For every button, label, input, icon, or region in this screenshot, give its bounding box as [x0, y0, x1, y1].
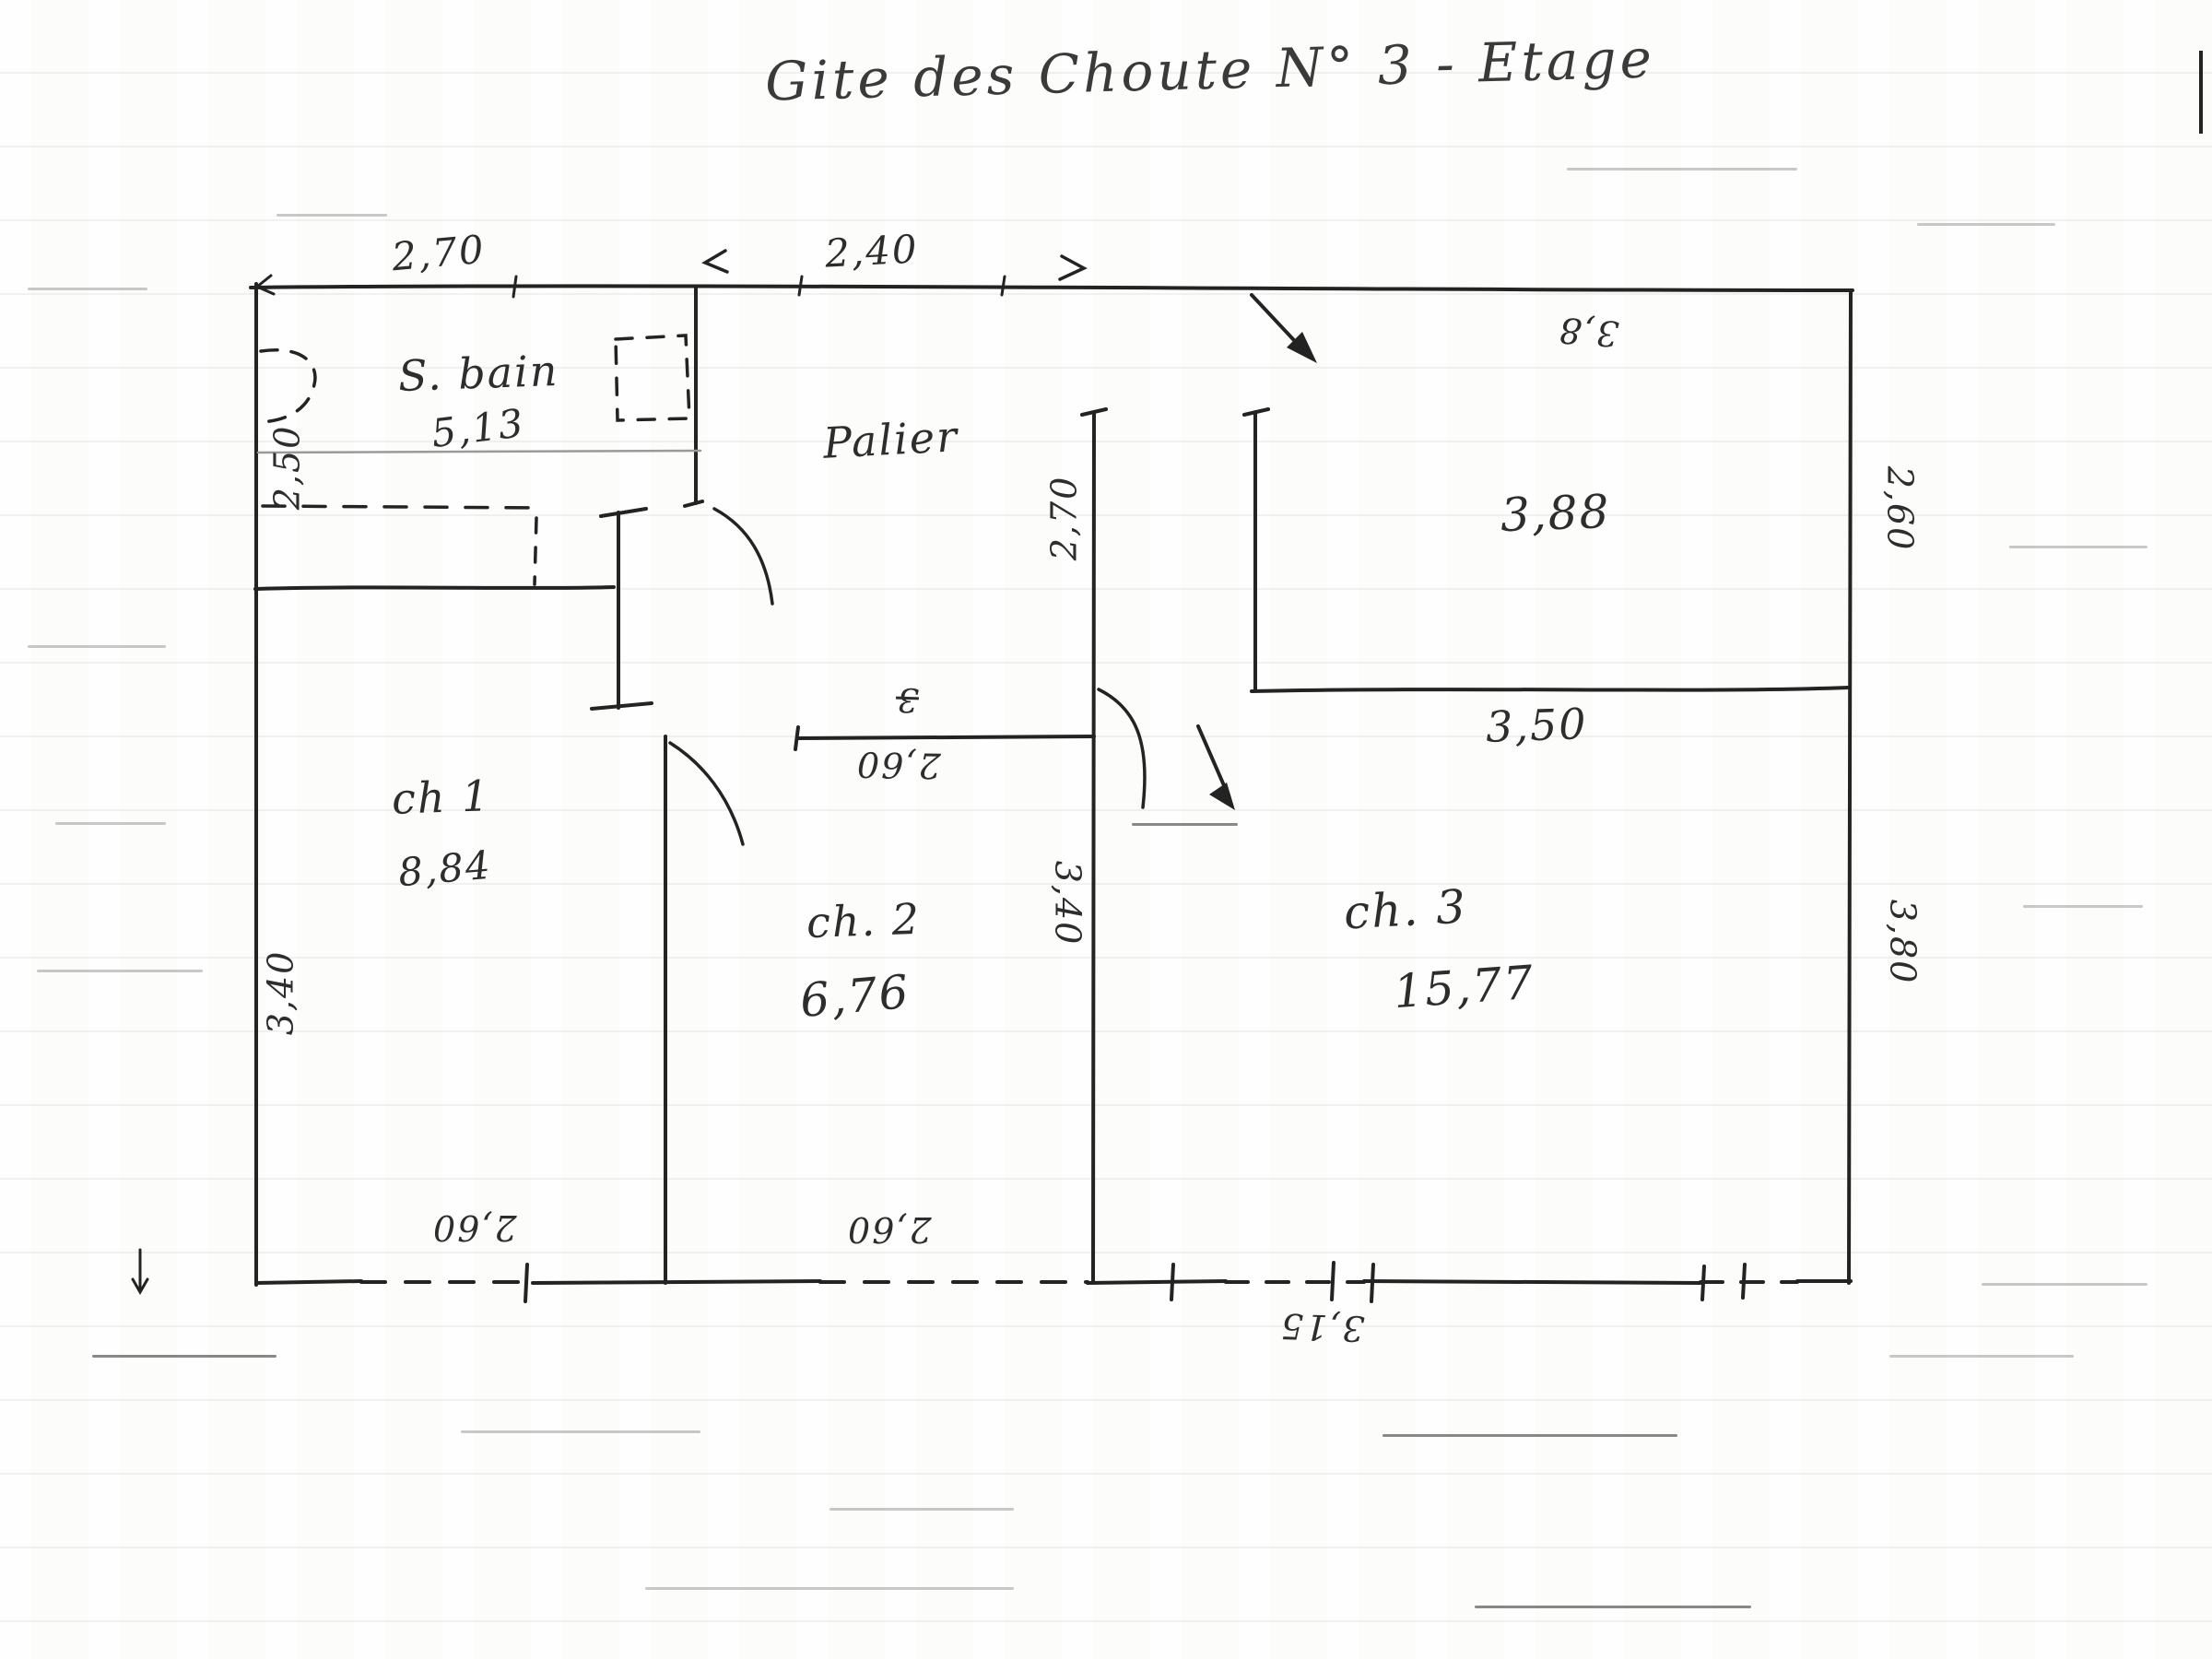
- area-room-ne: 3,88: [1500, 485, 1611, 542]
- dim-top-mid: 2,40: [824, 226, 920, 276]
- dim-chevron-right: [1060, 256, 1084, 279]
- wall-right: [1849, 290, 1851, 1283]
- dim-ch2-top-mark: 3: [895, 680, 919, 719]
- room-label-ch3: ch. 3: [1343, 880, 1469, 940]
- dim-palier-east-rotated: 2,70: [1043, 476, 1084, 561]
- dim-bottom-ch2-upside-down: 2,60: [846, 1209, 932, 1250]
- dashed-door-opening: [616, 335, 689, 420]
- scanned-floor-plan-sheet: Gite des Choute N° 3 - Etage 2,70 2,40 3…: [0, 0, 2212, 1659]
- dim-left-upper-rotated: 2,50: [266, 425, 307, 511]
- area-ch2: 6,76: [798, 965, 912, 1028]
- dim-top-right-upside-down: 3,8: [1557, 310, 1620, 355]
- fixture-sink-outline: [261, 350, 315, 422]
- room-label-sbain: S. bain: [397, 346, 559, 401]
- wall-ch1-north: [255, 587, 614, 589]
- dim-ch2-east-rotated: 3,40: [1047, 861, 1088, 947]
- wall-bottom-segment: [1088, 1281, 1226, 1283]
- wall-bottom-segment: [1364, 1281, 1700, 1283]
- wall-room-ne-south: [1252, 688, 1849, 691]
- wall-bottom-segment: [256, 1281, 361, 1283]
- dim-bottom-right-upside-down: 3,15: [1278, 1305, 1365, 1348]
- wall-bottom-segment: [533, 1281, 820, 1283]
- wall-palier-east: [1082, 409, 1106, 1283]
- door-swing-ch2: [670, 743, 743, 844]
- room-label-palier: Palier: [822, 411, 960, 468]
- door-jamb-cap-top: [601, 509, 646, 516]
- room-label-ch1: ch 1: [391, 771, 491, 824]
- faint-scan-line: [258, 451, 700, 453]
- bottom-wall-tick: [1332, 1263, 1334, 1300]
- wall-room-ne-west: [1244, 409, 1268, 689]
- area-ch1: 8,84: [396, 842, 493, 896]
- door-swing-ch3: [1099, 689, 1145, 807]
- dim-tick: [513, 276, 516, 297]
- floor-plan-drawing: [0, 0, 2212, 1659]
- bottom-wall-tick: [525, 1265, 527, 1301]
- dim-room-ne-bottom: 3,50: [1485, 699, 1588, 752]
- room-label-ch2: ch. 2: [806, 894, 922, 947]
- bottom-wall-tick: [1371, 1265, 1373, 1301]
- bottom-wall-tick: [1171, 1265, 1173, 1300]
- door-arrow-head: [1209, 782, 1235, 810]
- bottom-wall-tick: [1702, 1266, 1704, 1300]
- dim-ch2-top-upside-down: 2,60: [855, 744, 941, 786]
- dashed-door-line: [535, 518, 536, 584]
- bottom-wall-tick: [1743, 1265, 1745, 1298]
- dim-right-upper-rotated: 2,60: [1879, 466, 1920, 552]
- area-ch3: 15,77: [1392, 956, 1536, 1019]
- dim-tick: [1002, 276, 1005, 295]
- dim-left-lower-rotated: 3,40: [260, 950, 300, 1036]
- door-swing-palier: [714, 509, 772, 604]
- dim-top-left: 2,70: [390, 227, 487, 280]
- wall-top: [251, 286, 1853, 290]
- dim-tick: [799, 276, 802, 295]
- bottom-left-arrow: [133, 1250, 147, 1292]
- dim-right-lower-rotated: 3,80: [1882, 900, 1923, 985]
- wall-ch2-north: [795, 727, 1094, 749]
- dim-arrow-left: [257, 276, 274, 294]
- door-jamb-cap-bottom: [592, 703, 652, 709]
- dim-bottom-ch1-upside-down: 2,60: [431, 1207, 517, 1248]
- dim-chevron-left: [705, 251, 727, 272]
